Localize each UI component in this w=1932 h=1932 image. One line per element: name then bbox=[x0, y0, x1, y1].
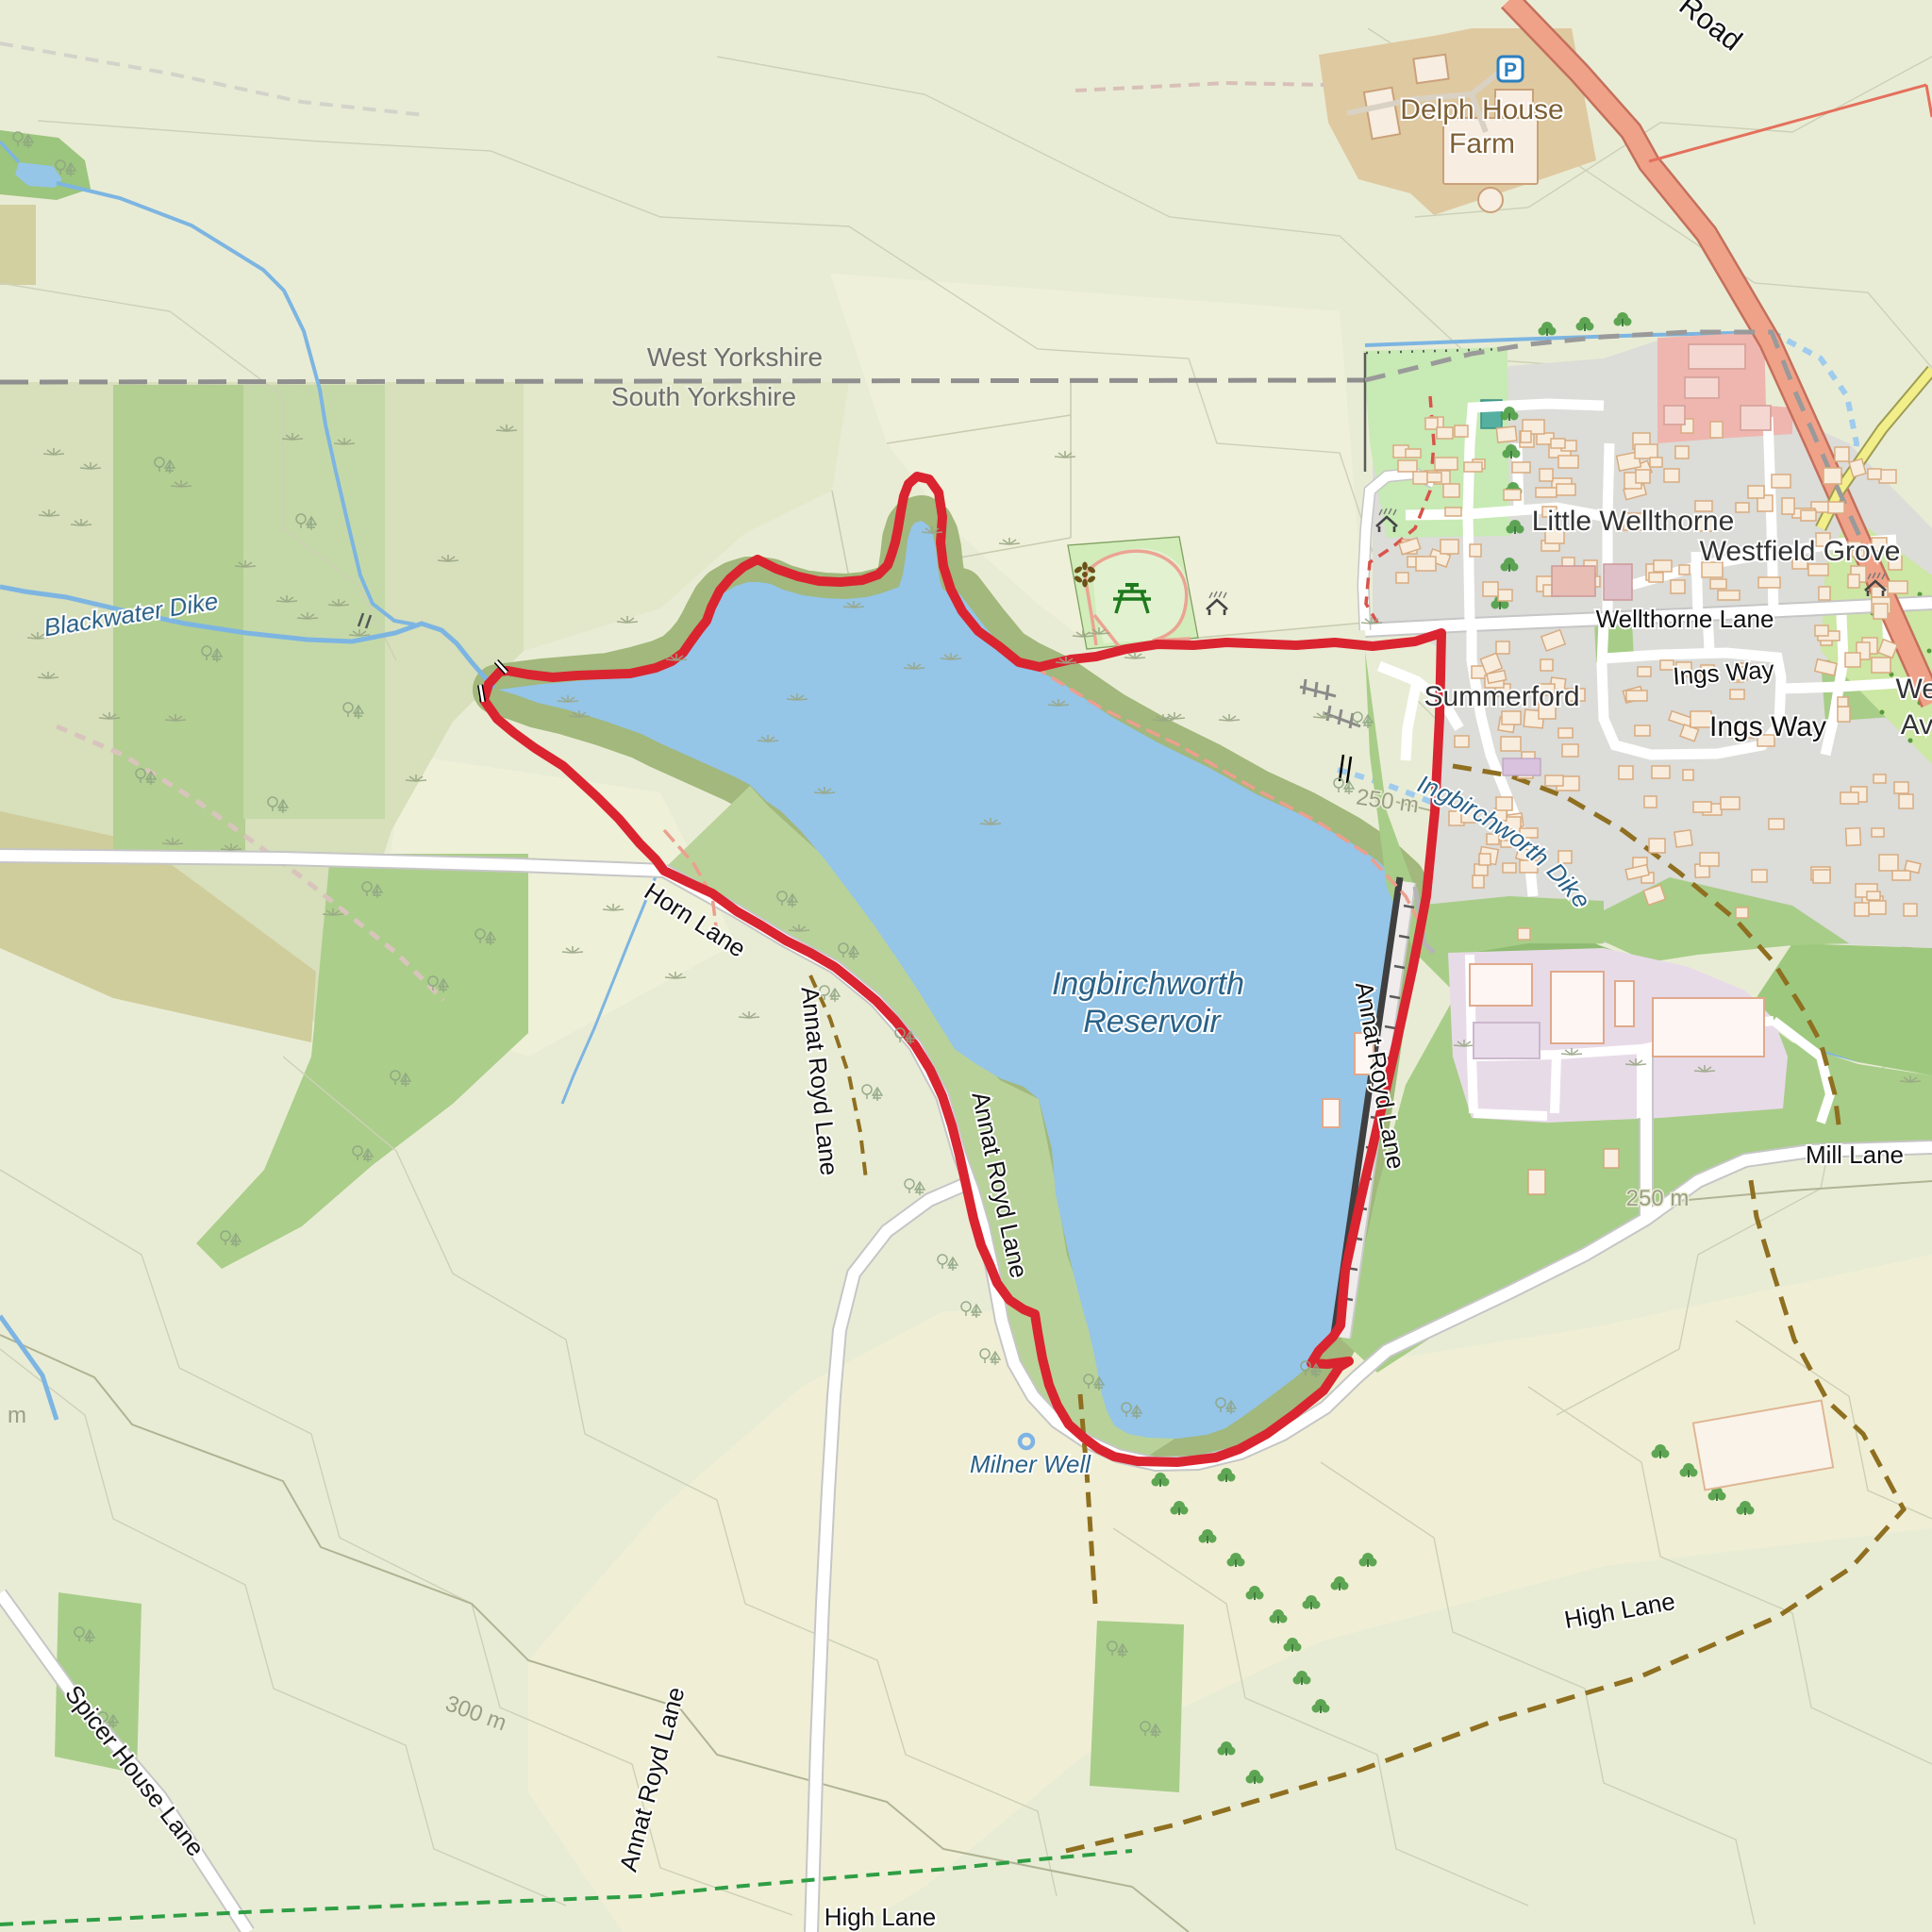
svg-text:Milner Well: Milner Well bbox=[970, 1450, 1091, 1478]
svg-text:Westfield Grove: Westfield Grove bbox=[1700, 536, 1901, 567]
svg-text:West Yorkshire: West Yorkshire bbox=[647, 342, 823, 372]
svg-text:South Yorkshire: South Yorkshire bbox=[611, 382, 796, 411]
svg-text:Delph House: Delph House bbox=[1400, 94, 1563, 125]
svg-text:Wel: Wel bbox=[1895, 674, 1932, 705]
svg-text:Reservoir: Reservoir bbox=[1083, 1004, 1222, 1040]
svg-text:P: P bbox=[1504, 59, 1517, 81]
svg-text:Av: Av bbox=[1901, 709, 1932, 741]
svg-text:High Lane: High Lane bbox=[824, 1903, 937, 1931]
svg-text:Wellthorne Lane: Wellthorne Lane bbox=[1596, 605, 1774, 633]
svg-text:Mill Lane: Mill Lane bbox=[1806, 1141, 1904, 1169]
svg-text:m: m bbox=[8, 1403, 26, 1428]
svg-text:Summerford: Summerford bbox=[1424, 681, 1579, 712]
svg-text:Little Wellthorne: Little Wellthorne bbox=[1532, 506, 1735, 537]
svg-text:Ings Way: Ings Way bbox=[1709, 711, 1826, 742]
svg-text:Ingbirchworth: Ingbirchworth bbox=[1052, 966, 1244, 1002]
svg-text:Farm: Farm bbox=[1449, 128, 1515, 159]
svg-text:250 m: 250 m bbox=[1626, 1186, 1690, 1211]
